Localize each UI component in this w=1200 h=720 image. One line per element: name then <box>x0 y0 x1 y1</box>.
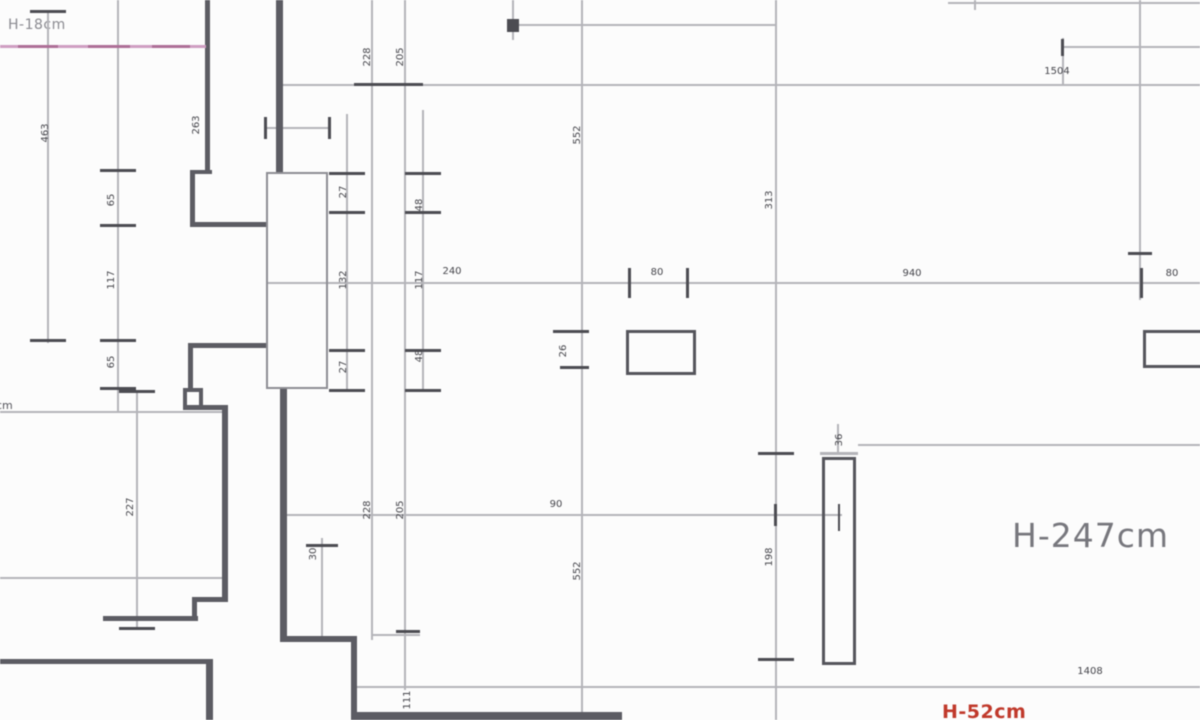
height-annotation-top-left: H-18cm <box>8 17 66 33</box>
dimension-tick <box>306 544 338 547</box>
dimension-line <box>136 390 138 630</box>
dimension-line <box>0 577 225 579</box>
dimension-label: 205 <box>396 47 406 66</box>
wall-segment <box>222 405 228 601</box>
dimension-line <box>265 127 330 129</box>
dimension-tick <box>329 349 365 352</box>
wall-segment <box>352 712 622 720</box>
wall-segment <box>206 659 213 720</box>
pink-line-dash <box>88 45 130 48</box>
dimension-line <box>352 686 1200 688</box>
dimension-label: 90 <box>550 500 563 510</box>
dimension-line <box>513 24 776 26</box>
wall-segment <box>351 636 357 720</box>
dimension-line <box>1139 0 1141 300</box>
dimension-label: 132 <box>339 270 349 289</box>
dimension-tick <box>329 172 365 175</box>
dimension-line <box>581 0 583 720</box>
dimension-label: 27 <box>339 186 349 199</box>
dimension-tick <box>686 268 689 298</box>
dimension-tick <box>329 389 365 392</box>
dimension-tick <box>100 224 136 227</box>
dimension-tick <box>560 366 589 369</box>
dimension-tick <box>329 211 365 214</box>
dimension-label: 80 <box>651 268 664 278</box>
dimension-label: 228 <box>363 500 373 519</box>
column-rect <box>1143 330 1200 368</box>
dimension-label: 65 <box>107 356 117 369</box>
dimension-tick <box>507 19 519 32</box>
dimension-tick <box>1061 39 1064 56</box>
dimension-line <box>858 444 1200 446</box>
dimension-tick <box>405 389 441 392</box>
dimension-tick <box>758 452 794 455</box>
column-rect <box>626 330 696 375</box>
wall-segment <box>0 659 213 664</box>
dimension-line <box>404 0 406 690</box>
dimension-label: 27 <box>339 361 349 374</box>
wall-segment <box>276 0 283 174</box>
dimension-tick <box>1140 268 1143 298</box>
dimension-tick <box>30 10 66 13</box>
dimension-tick <box>30 339 66 342</box>
dimension-tick <box>405 211 441 214</box>
dimension-tick <box>119 390 155 393</box>
dimension-label: 30 <box>309 548 319 561</box>
wall-segment <box>188 343 268 348</box>
dimension-tick <box>100 339 136 342</box>
height-annotation-room: H-247cm <box>1012 516 1169 555</box>
wall-segment <box>190 170 195 227</box>
dimension-line <box>1063 46 1200 48</box>
dimension-line <box>372 634 420 636</box>
dimension-tick <box>354 83 390 86</box>
dimension-label: 36 <box>835 434 845 447</box>
dimension-line <box>974 0 976 10</box>
dimension-label: 463 <box>41 123 51 142</box>
dimension-line <box>321 538 323 638</box>
dimension-label: 111 <box>403 690 413 709</box>
wall-opening-rect <box>266 172 328 389</box>
dimension-tick <box>628 268 631 298</box>
dimension-line <box>0 411 222 413</box>
wall-segment <box>280 636 357 642</box>
wall-segment <box>103 616 198 621</box>
dimension-label: 263 <box>192 115 202 134</box>
dimension-label: 26 <box>559 345 569 358</box>
dimension-label: 940 <box>902 269 921 279</box>
dimension-tick <box>264 117 267 139</box>
dimension-label: 65 <box>107 194 117 207</box>
dimension-tick <box>387 83 423 86</box>
dimension-label: 117 <box>415 270 425 289</box>
dimension-label: 228 <box>363 47 373 66</box>
dimension-label: 117 <box>107 270 117 289</box>
wall-segment <box>183 405 228 410</box>
dimension-tick <box>396 630 420 633</box>
wall-segment <box>205 0 210 173</box>
pink-line-dash <box>152 45 190 48</box>
pink-reference-line <box>0 45 206 48</box>
dimension-tick <box>774 504 777 526</box>
dimension-label: 198 <box>765 547 775 566</box>
wall-segment <box>199 388 203 407</box>
dimension-label: 1504 <box>1044 67 1069 77</box>
dimension-label: 552 <box>573 125 583 144</box>
dimension-line <box>117 0 119 412</box>
wall-segment <box>190 222 268 227</box>
dimension-tick <box>100 169 136 172</box>
dimension-tick <box>328 117 331 139</box>
wall-segment <box>188 343 193 390</box>
dimension-tick <box>119 627 155 630</box>
dimension-label: 240 <box>442 267 461 277</box>
dimension-tick <box>1128 252 1152 255</box>
dimension-line <box>820 452 858 455</box>
dimension-tick <box>405 172 441 175</box>
dimension-tick <box>553 330 589 333</box>
dimension-label: 205 <box>396 500 406 519</box>
dimension-line <box>775 0 777 720</box>
dimension-label: 227 <box>126 497 136 516</box>
wall-segment <box>280 388 287 641</box>
dimension-label: 48 <box>415 199 425 212</box>
wall-segment <box>192 597 228 602</box>
dimension-label: 1408 <box>1077 667 1102 677</box>
dimension-tick <box>758 658 794 661</box>
dimension-line <box>266 282 1200 284</box>
dimension-line <box>47 10 49 343</box>
column-rect <box>822 457 856 665</box>
dimension-label: 552 <box>573 561 583 580</box>
floor-plan-viewport: H-18cm H-247cm cm H-52cm 463263651176522… <box>0 0 1200 720</box>
dimension-label: 313 <box>765 190 775 209</box>
floor-plan-canvas: H-18cm H-247cm cm H-52cm 463263651176522… <box>0 0 1200 720</box>
pink-line-dash <box>18 45 58 48</box>
dimension-label: 80 <box>1166 269 1179 279</box>
dimension-label: 48 <box>415 350 425 363</box>
dimension-line <box>371 0 373 640</box>
height-annotation-red: H-52cm <box>942 701 1026 720</box>
dimension-line <box>948 2 1200 4</box>
